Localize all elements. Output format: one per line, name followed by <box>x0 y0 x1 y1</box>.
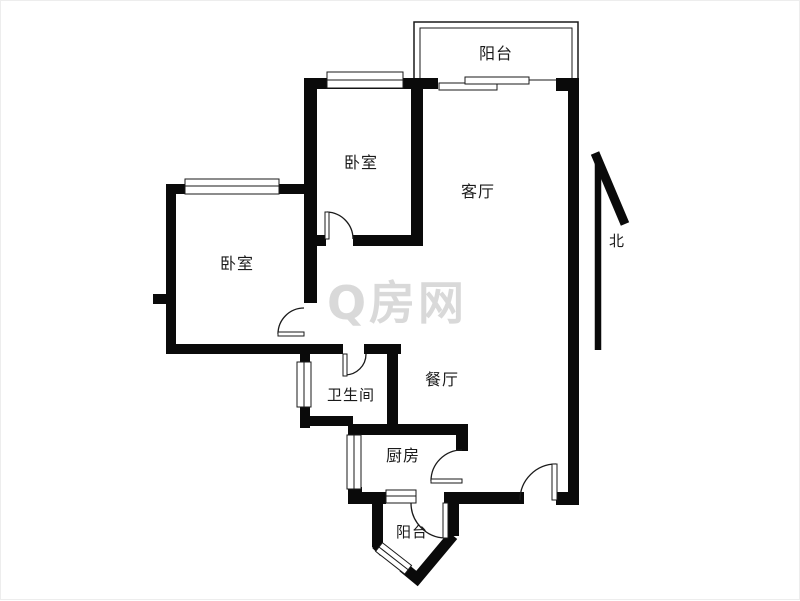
window-kitchen <box>347 435 361 489</box>
wall-segment <box>313 235 326 246</box>
room-label-living-room: 客厅 <box>461 182 495 201</box>
floor-plan-canvas: Q房网 <box>1 1 800 601</box>
wall-segment <box>348 424 468 435</box>
wall-segment <box>372 503 383 547</box>
room-label-bedroom-left: 卧室 <box>220 254 254 273</box>
wall-diagonal <box>403 536 453 579</box>
wall-segment <box>166 344 343 354</box>
room-label-dining-room: 餐厅 <box>425 370 459 389</box>
window-bedroom-left <box>185 179 279 194</box>
window-bedroom-top <box>327 72 403 88</box>
watermark: Q房网 <box>327 276 467 330</box>
wall-segment <box>568 78 579 505</box>
window-kitchen-bottom <box>386 490 416 503</box>
door-entry <box>520 464 557 500</box>
wall-segment <box>387 344 398 428</box>
door-bathroom <box>343 354 366 376</box>
room-label-bedroom-top: 卧室 <box>344 153 378 172</box>
door-bedroom-left <box>278 308 304 336</box>
room-label-bathroom: 卫生间 <box>327 386 375 404</box>
room-label-balcony-bottom: 阳台 <box>396 523 428 541</box>
wall-segment <box>444 492 524 504</box>
wall-segment <box>556 492 579 505</box>
wall-segment <box>300 416 353 426</box>
door-bedroom-top <box>325 212 353 239</box>
wall-segment <box>153 294 166 304</box>
window-balcony-diagonal <box>376 543 412 574</box>
doors-group <box>278 212 557 538</box>
sliding-window-living-balcony <box>439 77 529 90</box>
door-kitchen <box>431 450 462 483</box>
wall-segment <box>166 184 176 354</box>
floor-plan-page: Q房网 <box>0 0 800 600</box>
wall-segment <box>448 503 459 536</box>
room-label-kitchen: 厨房 <box>386 446 420 465</box>
wall-segment <box>411 78 423 246</box>
north-arrow: 北 <box>595 153 625 350</box>
room-label-balcony-top: 阳台 <box>479 44 513 63</box>
north-label: 北 <box>609 232 625 250</box>
wall-segment <box>348 492 386 504</box>
wall-segment <box>353 235 423 246</box>
wall-segment <box>456 424 468 451</box>
window-bathroom <box>297 362 311 407</box>
